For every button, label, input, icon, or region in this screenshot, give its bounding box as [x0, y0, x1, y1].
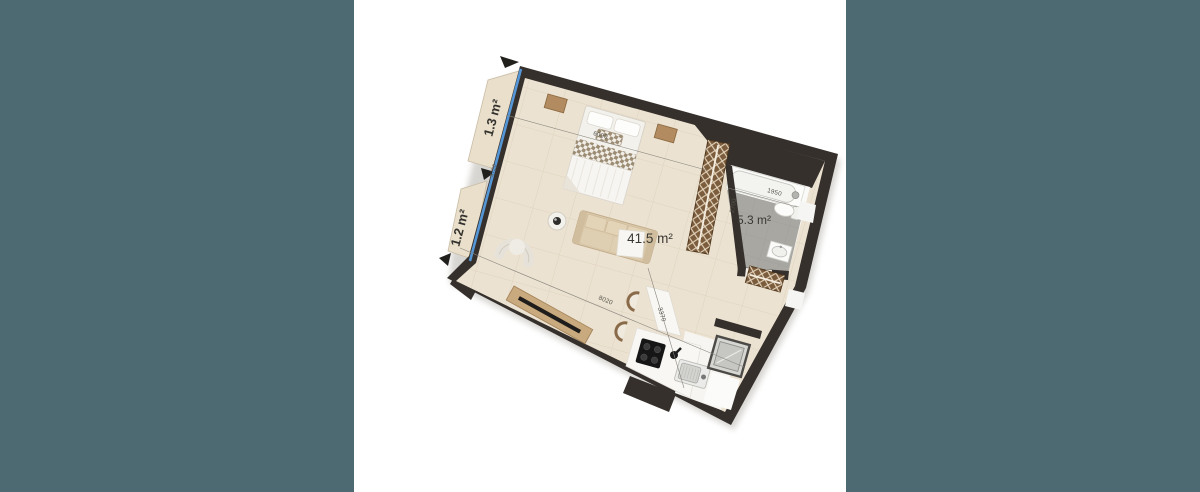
side-table [548, 212, 566, 230]
area-label-bathroom: 5.3 m² [737, 213, 771, 227]
wall-niche-cistern [797, 201, 816, 223]
corner-mark-west [439, 253, 451, 266]
floorplan-svg: 6000 4720 8020 3370 1950 2700 41.5 m² 5.… [354, 0, 846, 492]
stage: 6000 4720 8020 3370 1950 2700 41.5 m² 5.… [354, 0, 846, 492]
area-label-living: 41.5 m² [627, 231, 673, 246]
corner-mark-north [500, 56, 519, 68]
canvas: 6000 4720 8020 3370 1950 2700 41.5 m² 5.… [0, 0, 1200, 492]
